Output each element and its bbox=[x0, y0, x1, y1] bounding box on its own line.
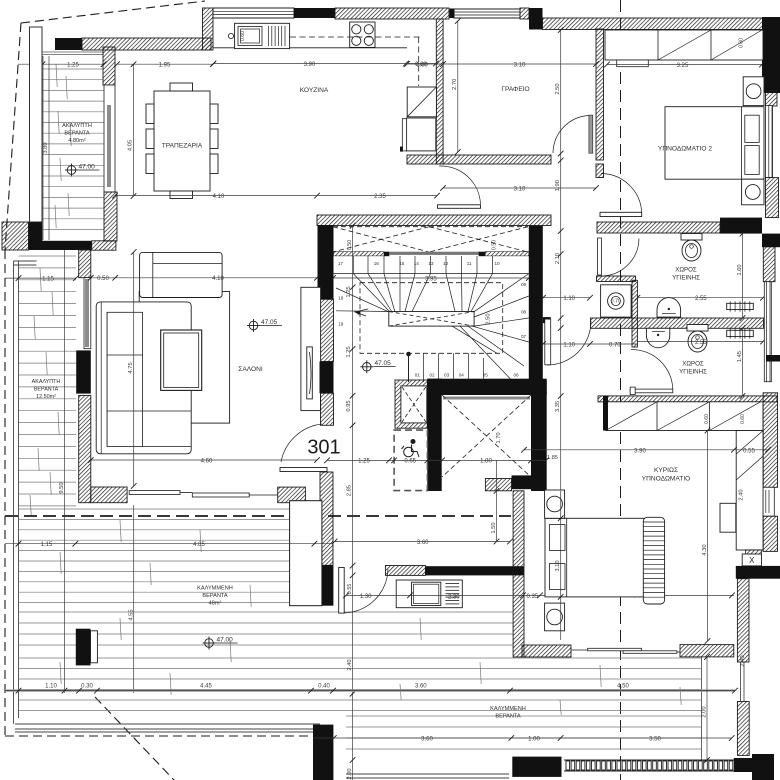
svg-text:14: 14 bbox=[414, 261, 420, 266]
svg-text:3.25: 3.25 bbox=[677, 63, 689, 69]
svg-text:4.10: 4.10 bbox=[212, 276, 224, 282]
svg-text:1.85: 1.85 bbox=[547, 455, 558, 461]
svg-text:13: 13 bbox=[428, 261, 434, 266]
svg-text:0.30: 0.30 bbox=[81, 684, 93, 690]
svg-text:0.55: 0.55 bbox=[347, 584, 353, 595]
svg-text:16: 16 bbox=[374, 261, 380, 266]
svg-text:ΒΕΡΑΝΤΑ: ΒΕΡΑΝΤΑ bbox=[495, 714, 521, 720]
svg-text:48m²: 48m² bbox=[209, 601, 222, 607]
svg-text:3.90: 3.90 bbox=[634, 448, 646, 454]
svg-text:2.40: 2.40 bbox=[739, 489, 745, 500]
svg-text:1.25: 1.25 bbox=[346, 286, 352, 297]
svg-text:4.30: 4.30 bbox=[702, 544, 708, 555]
svg-text:0.60: 0.60 bbox=[240, 31, 246, 41]
svg-text:4.85: 4.85 bbox=[193, 542, 205, 548]
svg-text:47.05: 47.05 bbox=[261, 319, 278, 326]
svg-text:11: 11 bbox=[467, 261, 472, 266]
svg-text:0.65: 0.65 bbox=[404, 459, 416, 465]
svg-text:10: 10 bbox=[494, 261, 500, 266]
svg-text:0.60: 0.60 bbox=[415, 62, 427, 68]
svg-text:ΒΕΡΑΝΤΑ: ΒΕΡΑΝΤΑ bbox=[34, 387, 59, 393]
svg-text:1.80: 1.80 bbox=[480, 459, 492, 465]
svg-text:1.15: 1.15 bbox=[41, 542, 53, 548]
svg-text:3.10: 3.10 bbox=[514, 63, 526, 69]
svg-text:1.25: 1.25 bbox=[346, 346, 352, 357]
svg-text:0.60: 0.60 bbox=[739, 38, 745, 48]
svg-text:0.95: 0.95 bbox=[346, 400, 352, 411]
svg-text:ΥΓΙΕΙΝΗΣ: ΥΓΙΕΙΝΗΣ bbox=[679, 369, 707, 376]
svg-text:2.70: 2.70 bbox=[452, 79, 458, 90]
svg-text:2.85: 2.85 bbox=[347, 485, 353, 496]
svg-text:4.05: 4.05 bbox=[128, 140, 134, 151]
svg-text:2.30: 2.30 bbox=[448, 594, 460, 600]
svg-text:X: X bbox=[749, 556, 755, 565]
svg-text:18: 18 bbox=[338, 296, 344, 301]
svg-text:04: 04 bbox=[459, 373, 465, 378]
svg-text:2.10: 2.10 bbox=[555, 253, 561, 264]
svg-text:08: 08 bbox=[521, 309, 527, 314]
svg-text:4.10: 4.10 bbox=[213, 194, 225, 200]
svg-text:ΣΑΛΟΝΙ: ΣΑΛΟΝΙ bbox=[238, 366, 263, 373]
svg-text:0.40: 0.40 bbox=[318, 684, 330, 690]
svg-text:1.50: 1.50 bbox=[491, 522, 497, 533]
svg-text:2.50: 2.50 bbox=[486, 313, 492, 324]
svg-text:3.10: 3.10 bbox=[555, 560, 561, 571]
svg-text:07: 07 bbox=[521, 334, 527, 339]
svg-text:2.00: 2.00 bbox=[702, 706, 708, 717]
svg-text:05: 05 bbox=[483, 373, 489, 378]
svg-text:1.10: 1.10 bbox=[563, 296, 575, 302]
svg-text:2.55: 2.55 bbox=[695, 296, 707, 302]
svg-text:2.40: 2.40 bbox=[347, 659, 353, 670]
svg-text:ΒΕΡΑΝΤΑ: ΒΕΡΑΝΤΑ bbox=[202, 593, 228, 599]
svg-text:4.75: 4.75 bbox=[128, 362, 134, 373]
svg-text:3.60: 3.60 bbox=[421, 737, 433, 743]
svg-text:47.05: 47.05 bbox=[375, 360, 392, 367]
svg-text:19: 19 bbox=[338, 322, 344, 327]
svg-text:2.55: 2.55 bbox=[695, 340, 707, 346]
svg-text:4.55: 4.55 bbox=[128, 609, 134, 620]
svg-text:2.50: 2.50 bbox=[555, 83, 561, 94]
svg-text:301: 301 bbox=[307, 437, 340, 459]
svg-text:3.95: 3.95 bbox=[425, 277, 437, 283]
svg-text:06: 06 bbox=[513, 373, 519, 378]
svg-text:ΥΠΝΟΔΩΜΑΤΙΟ 2: ΥΠΝΟΔΩΜΑΤΙΟ 2 bbox=[658, 146, 712, 153]
svg-text:01: 01 bbox=[415, 373, 421, 378]
svg-text:47.00: 47.00 bbox=[217, 637, 234, 644]
svg-text:0.50: 0.50 bbox=[492, 240, 498, 250]
svg-text:0.60: 0.60 bbox=[740, 414, 746, 424]
svg-text:02: 02 bbox=[429, 373, 435, 378]
svg-text:1.10: 1.10 bbox=[45, 684, 57, 690]
svg-text:1.15: 1.15 bbox=[42, 277, 54, 283]
svg-text:12: 12 bbox=[443, 261, 449, 266]
svg-text:17: 17 bbox=[338, 261, 344, 266]
svg-text:3.10: 3.10 bbox=[514, 187, 526, 193]
svg-text:3.90: 3.90 bbox=[304, 62, 316, 68]
svg-text:ΧΩΡΟΣ: ΧΩΡΟΣ bbox=[682, 361, 704, 368]
svg-text:0.55: 0.55 bbox=[743, 448, 755, 454]
svg-text:09: 09 bbox=[521, 282, 527, 287]
svg-text:ΚΑΛΥΜΜΕΝΗ: ΚΑΛΥΜΜΕΝΗ bbox=[490, 706, 526, 712]
svg-text:0.50: 0.50 bbox=[347, 240, 353, 250]
svg-text:1.95: 1.95 bbox=[159, 63, 171, 69]
svg-text:1.45: 1.45 bbox=[737, 351, 743, 362]
svg-text:0.70: 0.70 bbox=[609, 342, 621, 348]
svg-text:1.25: 1.25 bbox=[67, 63, 79, 69]
svg-text:15: 15 bbox=[399, 261, 405, 266]
svg-text:0.35: 0.35 bbox=[526, 594, 538, 600]
svg-text:ΑΚΑΛΥΠΤΗ: ΑΚΑΛΥΠΤΗ bbox=[32, 379, 61, 385]
svg-text:ΚΥΡΙΩΣ: ΚΥΡΙΩΣ bbox=[654, 467, 678, 474]
svg-text:2.00: 2.00 bbox=[347, 768, 353, 779]
svg-text:1.90: 1.90 bbox=[555, 180, 561, 191]
svg-text:ΤΡΑΠΕΖΑΡΙΑ: ΤΡΑΠΕΖΑΡΙΑ bbox=[162, 143, 203, 150]
svg-text:4.50: 4.50 bbox=[617, 684, 629, 690]
svg-text:1.25: 1.25 bbox=[358, 459, 370, 465]
svg-text:3.60: 3.60 bbox=[415, 684, 427, 690]
svg-text:12.50m²: 12.50m² bbox=[36, 394, 56, 400]
svg-text:9.50: 9.50 bbox=[59, 482, 65, 493]
svg-text:3.35: 3.35 bbox=[555, 401, 561, 412]
svg-text:4.45: 4.45 bbox=[200, 684, 212, 690]
svg-text:ΥΓΙΕΙΝΗΣ: ΥΓΙΕΙΝΗΣ bbox=[672, 275, 700, 282]
svg-text:ΧΩΡΟΣ: ΧΩΡΟΣ bbox=[675, 267, 697, 274]
svg-text:4.60: 4.60 bbox=[201, 458, 213, 464]
svg-text:2.35: 2.35 bbox=[374, 194, 386, 200]
svg-text:ΚΑΛΥΜΜΕΝΗ: ΚΑΛΥΜΜΕΝΗ bbox=[197, 586, 233, 592]
svg-text:ΒΕΡΑΝΤΑ: ΒΕΡΑΝΤΑ bbox=[64, 131, 90, 137]
svg-text:0.60: 0.60 bbox=[704, 414, 710, 424]
svg-text:ΚΟΥΖΙΝΑ: ΚΟΥΖΙΝΑ bbox=[300, 87, 329, 94]
svg-text:03: 03 bbox=[444, 373, 450, 378]
svg-text:0.70: 0.70 bbox=[611, 298, 621, 304]
svg-text:1.60: 1.60 bbox=[737, 264, 743, 275]
svg-text:4.80m²: 4.80m² bbox=[68, 138, 86, 144]
svg-text:3.60: 3.60 bbox=[417, 540, 429, 546]
svg-text:3.50: 3.50 bbox=[649, 737, 661, 743]
svg-text:47.00: 47.00 bbox=[79, 164, 96, 171]
svg-text:2.40: 2.40 bbox=[740, 655, 746, 666]
svg-text:3.80: 3.80 bbox=[43, 142, 49, 153]
svg-text:0.50: 0.50 bbox=[97, 276, 109, 282]
svg-text:ΥΠΝΟΔΩΜΑΤΙΟ: ΥΠΝΟΔΩΜΑΤΙΟ bbox=[642, 476, 691, 483]
svg-text:1.70: 1.70 bbox=[496, 432, 502, 443]
svg-text:1.30: 1.30 bbox=[360, 594, 372, 600]
svg-text:ΓΡΑΦΕΙΟ: ΓΡΑΦΕΙΟ bbox=[501, 86, 529, 93]
svg-text:ΑΚΑΛΥΠΤΗ: ΑΚΑΛΥΠΤΗ bbox=[62, 123, 92, 129]
svg-text:1.00: 1.00 bbox=[528, 737, 540, 743]
svg-text:1.10: 1.10 bbox=[563, 342, 575, 348]
